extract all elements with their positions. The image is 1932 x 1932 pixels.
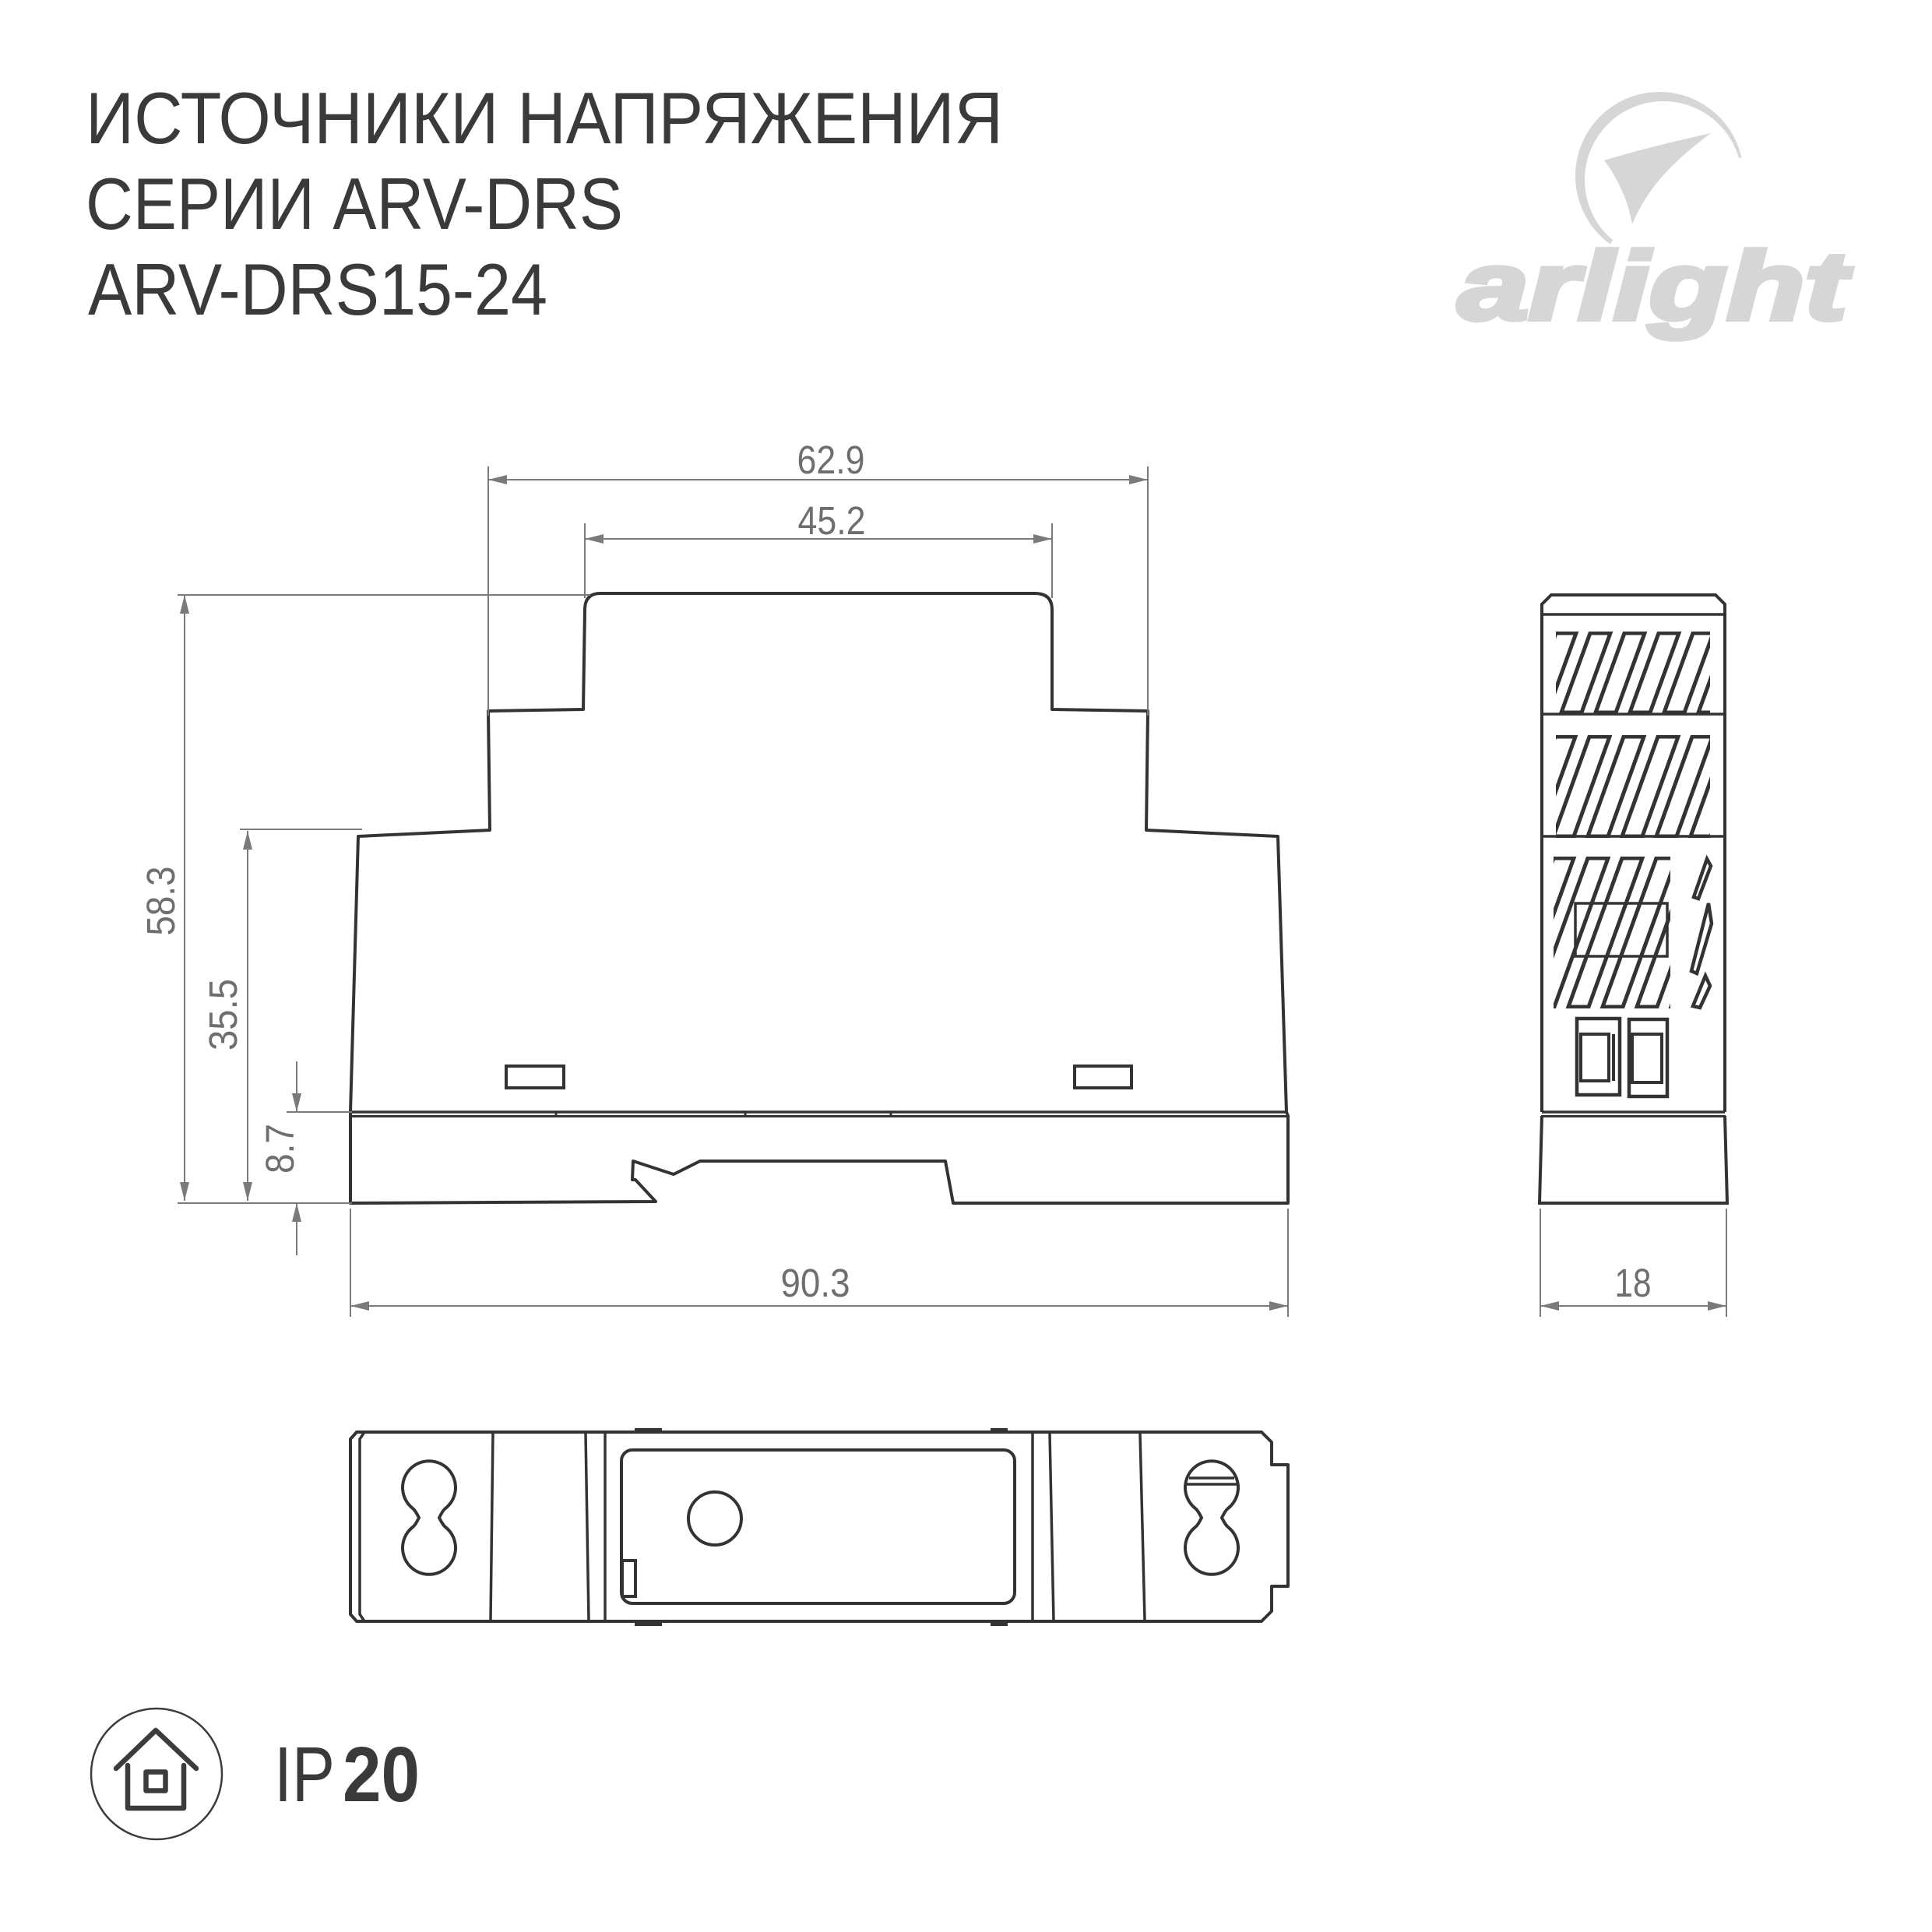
- svg-text:35.5: 35.5: [201, 979, 245, 1050]
- svg-text:IP: IP: [274, 1731, 335, 1818]
- svg-text:20: 20: [343, 1731, 420, 1818]
- svg-text:arlight: arlight: [1458, 233, 1852, 340]
- svg-text:58.3: 58.3: [139, 867, 183, 936]
- svg-text:ИСТОЧНИКИ НАПРЯЖЕНИЯ: ИСТОЧНИКИ НАПРЯЖЕНИЯ: [86, 77, 1003, 159]
- svg-text:45.2: 45.2: [798, 498, 866, 543]
- svg-text:18: 18: [1615, 1261, 1652, 1305]
- svg-text:8.7: 8.7: [258, 1124, 302, 1174]
- svg-text:СЕРИИ ARV-DRS: СЕРИИ ARV-DRS: [86, 163, 623, 245]
- svg-text:62.9: 62.9: [797, 438, 865, 482]
- svg-text:90.3: 90.3: [781, 1261, 850, 1305]
- svg-text:ARV-DRS15-24: ARV-DRS15-24: [88, 248, 547, 330]
